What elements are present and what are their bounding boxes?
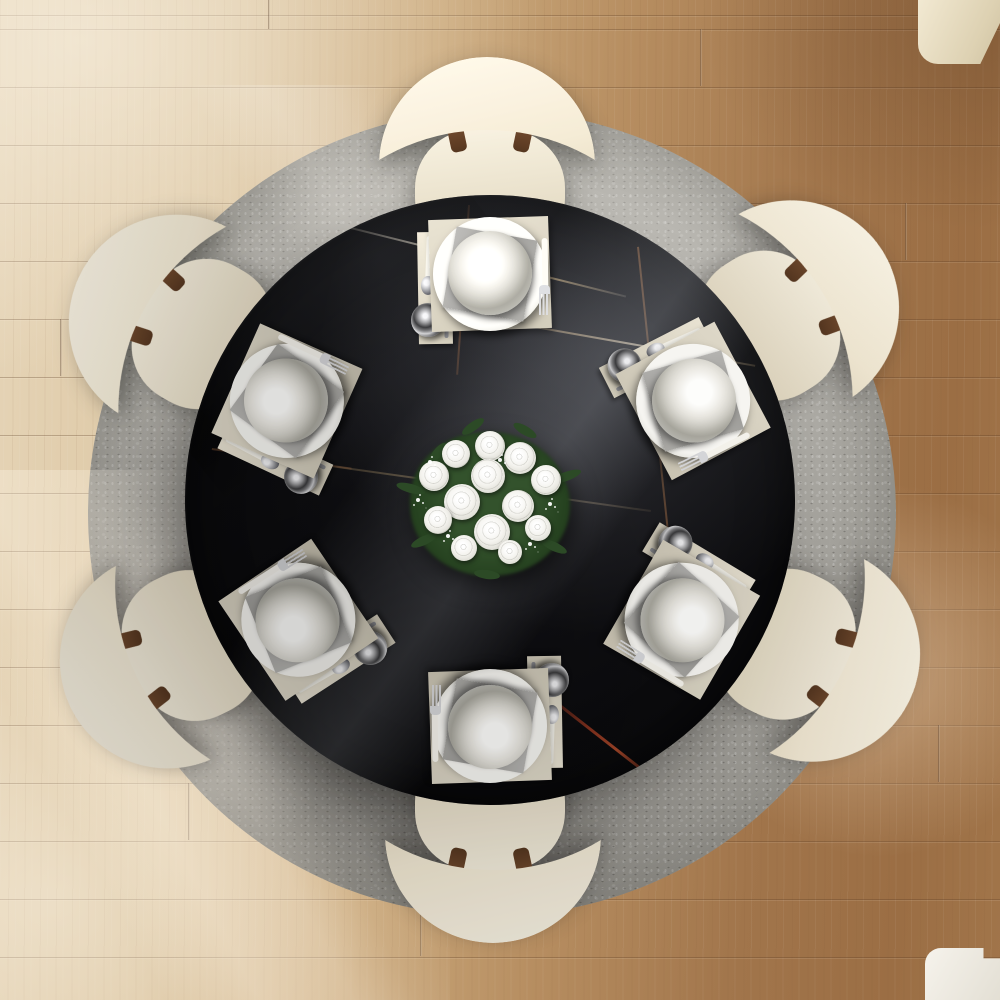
- babys-breath: [498, 458, 502, 462]
- plank-joint: [268, 0, 270, 29]
- rose-bouquet-centerpiece: [400, 424, 580, 584]
- bowl: [448, 685, 532, 769]
- fork: [432, 712, 439, 762]
- babys-breath: [528, 542, 532, 546]
- place-setting-bottom: [390, 638, 590, 808]
- rose: [442, 440, 470, 468]
- babys-breath: [446, 534, 450, 538]
- fork-tines: [430, 685, 441, 707]
- fork-neck: [430, 706, 441, 715]
- fork: [542, 238, 549, 288]
- rose: [451, 535, 477, 561]
- plank-joint: [700, 29, 702, 86]
- rose: [498, 540, 522, 564]
- place-setting-top: [390, 192, 590, 362]
- rose: [419, 461, 449, 491]
- rose: [525, 515, 551, 541]
- dining-room-scene: [0, 0, 1000, 1000]
- rose: [471, 459, 505, 493]
- rose: [531, 465, 561, 495]
- bowl: [448, 231, 532, 315]
- rose: [504, 442, 536, 474]
- rose: [424, 506, 452, 534]
- babys-breath: [416, 498, 420, 502]
- rose: [475, 431, 505, 461]
- fork-tines: [539, 293, 550, 315]
- babys-breath: [548, 502, 552, 506]
- babys-breath: [428, 460, 432, 464]
